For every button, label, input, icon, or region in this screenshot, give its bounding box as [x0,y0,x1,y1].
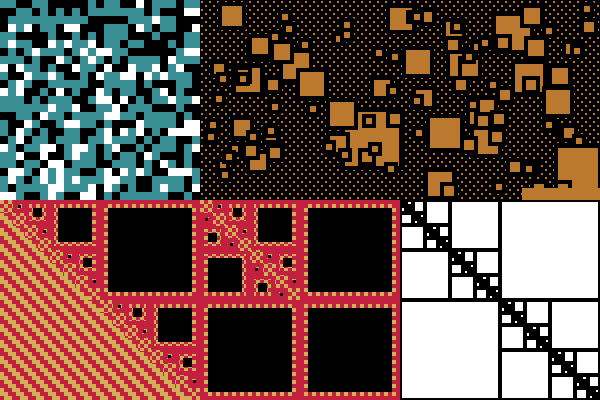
fractal-collage-canvas [0,0,600,400]
pattern-collage [0,0,600,400]
